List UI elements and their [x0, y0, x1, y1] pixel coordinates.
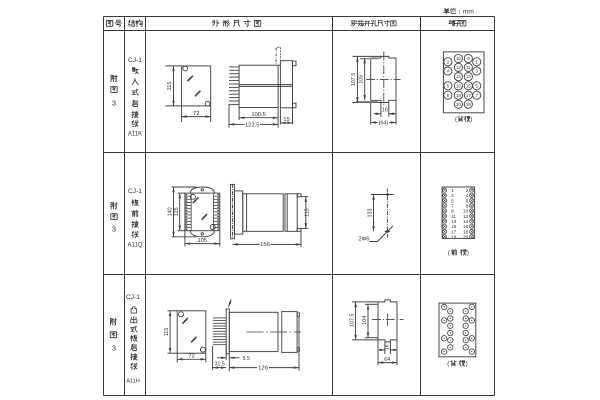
svg-text:18: 18	[463, 229, 469, 235]
svg-text:): )	[466, 362, 468, 368]
svg-text:(: (	[455, 117, 457, 123]
svg-text:107.5: 107.5	[349, 314, 355, 328]
svg-text:17: 17	[451, 229, 457, 235]
svg-text:2: 2	[466, 188, 469, 194]
svg-text:(64): (64)	[379, 121, 389, 127]
svg-text:15: 15	[283, 117, 289, 123]
svg-text:7: 7	[475, 93, 478, 98]
svg-text:): )	[470, 117, 472, 123]
svg-text:A11H: A11H	[126, 379, 140, 385]
svg-text:(: (	[447, 362, 449, 368]
svg-text:9: 9	[467, 56, 470, 61]
svg-text:115: 115	[164, 328, 170, 337]
svg-text:mm: mm	[463, 9, 474, 16]
svg-text:12: 12	[456, 65, 461, 70]
svg-text:13: 13	[466, 74, 471, 79]
svg-text:104: 104	[362, 316, 368, 325]
svg-text:1: 1	[451, 188, 454, 194]
svg-text:19: 19	[466, 102, 471, 107]
svg-text:140: 140	[167, 207, 173, 216]
svg-text:15: 15	[466, 83, 471, 88]
svg-text:31.5: 31.5	[214, 362, 225, 368]
svg-text:15: 15	[451, 224, 457, 230]
svg-text:122.5: 122.5	[245, 122, 260, 128]
svg-text:CJ-1: CJ-1	[128, 57, 142, 64]
svg-text:13: 13	[451, 219, 457, 225]
svg-text:16: 16	[385, 344, 391, 350]
svg-text:16: 16	[463, 224, 469, 230]
svg-text:72: 72	[193, 111, 199, 117]
svg-text:2: 2	[447, 59, 450, 64]
svg-text:20: 20	[463, 234, 469, 240]
svg-text:A11K: A11K	[128, 131, 142, 137]
svg-text:16: 16	[456, 83, 461, 88]
svg-text:3: 3	[451, 193, 454, 199]
svg-text:8: 8	[466, 204, 469, 210]
svg-text:5: 5	[451, 198, 454, 204]
svg-text:17: 17	[466, 93, 471, 98]
svg-text:(: (	[448, 251, 450, 257]
svg-text:10: 10	[456, 56, 461, 61]
svg-text:12: 12	[463, 214, 469, 220]
svg-text:4: 4	[466, 193, 469, 199]
svg-text:14: 14	[463, 219, 469, 225]
svg-text:8: 8	[447, 93, 450, 98]
svg-text:115: 115	[305, 208, 311, 217]
svg-text:): )	[467, 251, 469, 257]
svg-text:1: 1	[475, 59, 478, 64]
svg-text:3: 3	[112, 225, 116, 234]
svg-text:10: 10	[463, 209, 469, 215]
svg-text:9: 9	[451, 209, 454, 215]
svg-text::: :	[459, 9, 461, 16]
svg-text:2Φ6: 2Φ6	[358, 236, 369, 242]
svg-text:64: 64	[384, 357, 390, 363]
svg-text:20: 20	[456, 102, 461, 107]
svg-text:115: 115	[167, 82, 173, 91]
svg-text:3: 3	[112, 98, 116, 107]
svg-text:18: 18	[456, 93, 461, 98]
svg-text:125: 125	[174, 207, 180, 216]
svg-text:156: 156	[260, 242, 270, 248]
svg-text:14: 14	[456, 74, 461, 79]
svg-text:3: 3	[475, 69, 478, 74]
svg-text:CJ-1: CJ-1	[126, 294, 140, 301]
svg-text:16: 16	[382, 108, 388, 114]
svg-text:9.5: 9.5	[243, 356, 251, 362]
svg-text:5: 5	[475, 83, 478, 88]
svg-text:133: 133	[367, 209, 373, 218]
svg-text:107.5: 107.5	[351, 73, 357, 87]
svg-text:105: 105	[359, 75, 365, 84]
svg-text:CJ-1: CJ-1	[128, 188, 142, 195]
svg-text:105: 105	[197, 238, 207, 244]
svg-text:19: 19	[451, 234, 457, 240]
svg-text:7: 7	[451, 204, 454, 210]
svg-text:11: 11	[466, 65, 471, 70]
svg-text:3: 3	[112, 344, 116, 353]
svg-text:11: 11	[451, 214, 456, 220]
svg-text:A11Q: A11Q	[128, 243, 143, 249]
svg-text:126: 126	[258, 366, 268, 372]
svg-text:4: 4	[447, 69, 450, 74]
svg-text:6: 6	[466, 198, 469, 204]
svg-text:100.5: 100.5	[251, 112, 266, 118]
svg-text:72: 72	[188, 354, 194, 360]
svg-text:6: 6	[447, 83, 450, 88]
